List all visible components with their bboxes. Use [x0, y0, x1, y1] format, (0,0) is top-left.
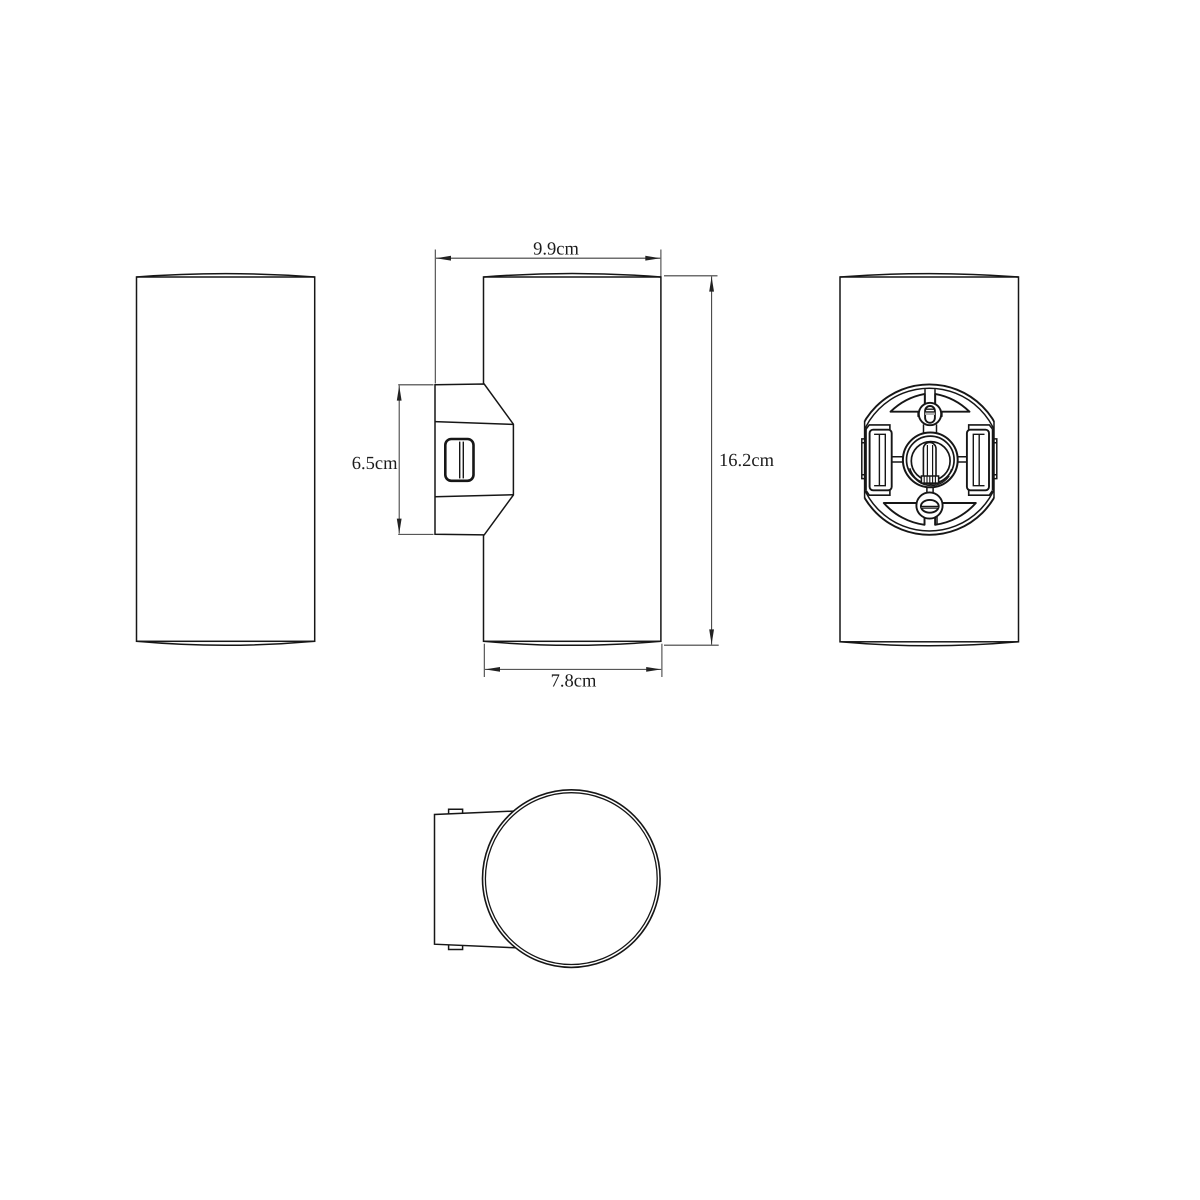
svg-text:16.2cm: 16.2cm — [719, 451, 775, 471]
svg-text:7.8cm: 7.8cm — [551, 672, 597, 692]
svg-text:6.5cm: 6.5cm — [352, 454, 398, 474]
svg-text:9.9cm: 9.9cm — [533, 240, 579, 260]
